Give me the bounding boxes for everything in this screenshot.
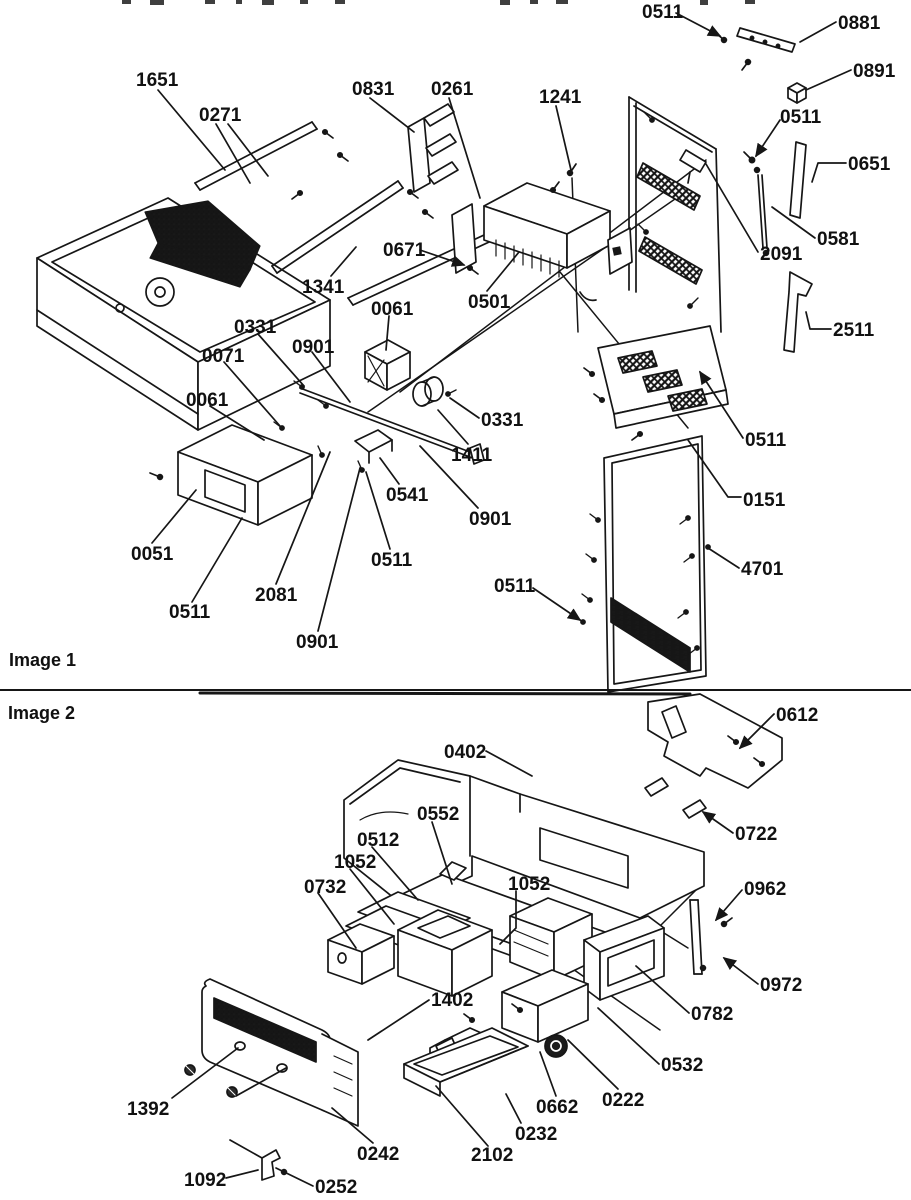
- part-number-callout: 0552: [417, 805, 459, 824]
- part-number-callout: 0252: [315, 1178, 357, 1197]
- bracket-plate-0612: [648, 694, 782, 788]
- part-number-callout: 1341: [302, 278, 344, 297]
- cap-0891: [788, 83, 806, 103]
- part-number-callout: 0972: [760, 976, 802, 995]
- trim-strip-2511: [784, 272, 812, 352]
- part-number-callout: 0402: [444, 743, 486, 762]
- image1-art: [37, 13, 851, 692]
- part-number-callout: 0271: [199, 106, 241, 125]
- freezer-back-panel: [616, 97, 721, 332]
- part-number-callout: 0722: [735, 825, 777, 844]
- part-number-callout: 0901: [469, 510, 511, 529]
- part-number-callout: 0511: [494, 577, 535, 596]
- mounting-bracket: [408, 104, 458, 192]
- part-number-callout: 1052: [508, 875, 550, 894]
- part-number-callout: 1651: [136, 71, 178, 90]
- part-number-callout: 0662: [536, 1098, 578, 1117]
- part-number-callout: 0512: [357, 831, 399, 850]
- part-number-callout: 0232: [515, 1125, 557, 1144]
- part-number-callout: 1411: [451, 446, 492, 465]
- part-number-callout: 1241: [539, 88, 581, 107]
- part-number-callout: 4701: [741, 560, 783, 579]
- top-mounting-bar: [716, 28, 795, 70]
- part-number-callout: 1402: [431, 991, 473, 1010]
- ice-bucket: [37, 198, 330, 430]
- part-number-callout: 0222: [602, 1091, 644, 1110]
- tray-2102: [404, 1028, 528, 1096]
- part-number-callout: 2091: [760, 245, 802, 264]
- part-number-callout: 0061: [186, 391, 228, 410]
- image2-caption: Image 2: [8, 703, 75, 724]
- part-number-callout: 0511: [371, 551, 412, 570]
- section-divider: [0, 690, 911, 694]
- part-number-callout: 1092: [184, 1171, 226, 1190]
- front-grille-panel: [202, 979, 358, 1126]
- part-number-callout: 2102: [471, 1146, 513, 1165]
- image2-art: [172, 694, 782, 1186]
- control-box: [150, 425, 312, 525]
- housing-0532: [510, 898, 592, 980]
- part-number-callout: 1392: [127, 1100, 169, 1119]
- image1-caption: Image 1: [9, 650, 76, 671]
- part-number-callout: 0511: [642, 3, 683, 22]
- part-number-callout: 1052: [334, 853, 376, 872]
- part-number-callout: 0511: [169, 603, 210, 622]
- part-number-callout: 0901: [292, 338, 334, 357]
- ice-maker-assembly: [452, 164, 632, 300]
- part-number-callout: 0732: [304, 878, 346, 897]
- part-number-callout: 0331: [481, 411, 523, 430]
- part-number-callout: 0651: [848, 155, 890, 174]
- part-number-callout: 0541: [386, 486, 428, 505]
- trim-strip-0962: [690, 900, 732, 974]
- part-number-callout: 0242: [357, 1145, 399, 1164]
- part-number-callout: 0501: [468, 293, 510, 312]
- part-number-callout: 0782: [691, 1005, 733, 1024]
- part-number-callout: 0581: [817, 230, 859, 249]
- part-number-callout: 0511: [745, 431, 786, 450]
- part-number-callout: 0532: [661, 1056, 703, 1075]
- part-number-callout: 0331: [234, 318, 276, 337]
- part-number-callout: 0051: [131, 545, 173, 564]
- part-number-callout: 0881: [838, 14, 880, 33]
- damper-box-0732: [328, 924, 394, 984]
- part-number-callout: 0901: [296, 633, 338, 652]
- exploded-parts-diagram-page: 0511088108911651027108310261124105110651…: [0, 0, 911, 1200]
- part-number-callout: 0061: [371, 300, 413, 319]
- part-number-callout: 0071: [202, 347, 244, 366]
- rod-0581: [755, 168, 769, 256]
- part-number-callout: 0891: [853, 62, 895, 81]
- part-number-callout: 0671: [383, 241, 425, 260]
- roller-pins: [645, 778, 706, 818]
- clip-1092: [230, 1140, 286, 1180]
- part-number-callout: 0261: [431, 80, 473, 99]
- part-number-callout: 0831: [352, 80, 394, 99]
- screw-0511-right: [744, 152, 755, 163]
- part-number-callout: 0511: [780, 108, 821, 127]
- trim-strip-0651: [790, 142, 806, 218]
- part-number-callout: 0151: [743, 491, 785, 510]
- evaporator-panel: [575, 436, 710, 692]
- part-number-callout: 0612: [776, 706, 818, 725]
- diagram-line-art: [0, 0, 911, 1200]
- part-number-callout: 2081: [255, 586, 297, 605]
- part-number-callout: 2511: [833, 321, 874, 340]
- part-number-callout: 0962: [744, 880, 786, 899]
